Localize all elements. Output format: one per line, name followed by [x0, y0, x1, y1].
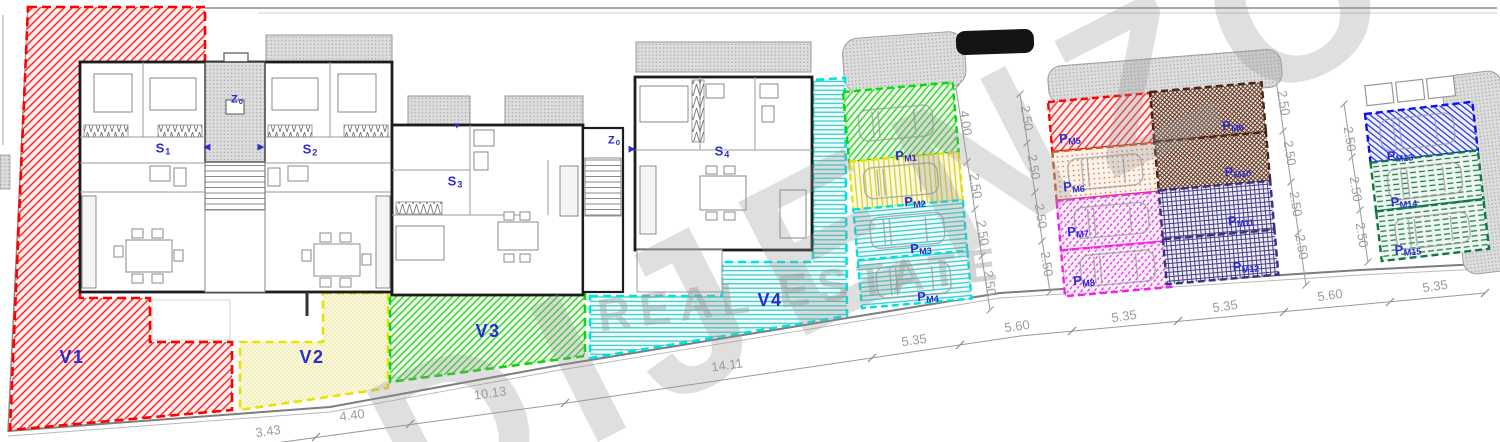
dimension-label: 5.60 — [1004, 318, 1031, 334]
parking-pm9-label: PM9 — [1222, 118, 1245, 135]
zone-v1-label: V1 — [59, 348, 84, 366]
door-right-icon: ▶ — [629, 145, 636, 154]
unit-s3-label: S3 — [448, 174, 463, 189]
door-left-icon: ◀ — [204, 143, 211, 152]
parking-space-pm4 — [858, 251, 972, 308]
parking-pm12-label: PM12 — [1232, 258, 1260, 275]
door-down-icon: ▼ — [453, 122, 462, 131]
dimension-label: 2.50 — [1354, 221, 1371, 248]
dimension-label: 5.60 — [1317, 287, 1344, 303]
unit-s2-label: S2 — [303, 142, 318, 157]
unit-z0-upper-label: Z0 — [608, 135, 620, 146]
parking-pm3-label: PM3 — [910, 241, 933, 258]
boundary-utility-block — [0, 155, 10, 189]
unit-s1-label: S1 — [156, 141, 171, 156]
redaction-box — [956, 29, 1035, 56]
storage-box — [1365, 83, 1394, 106]
dimension-label: 2.50 — [1026, 153, 1043, 180]
dimension-label: 2.50 — [1039, 250, 1056, 277]
dimension-label: 2.50 — [1294, 233, 1311, 260]
building-s4 — [635, 42, 812, 292]
dimension-label: 2.50 — [1288, 190, 1305, 217]
dimension-label: 2.50 — [982, 269, 999, 296]
dimension-label: 4.00 — [958, 109, 975, 136]
dimension-label: 3.43 — [255, 423, 282, 439]
dimension-label: 5.35 — [1422, 278, 1449, 294]
stair-core-z0-upper — [583, 128, 623, 292]
terrace-v1 — [152, 300, 230, 340]
parking-pm14-label: PM14 — [1390, 193, 1418, 210]
unit-z0-label: Z0 — [231, 94, 243, 105]
parking-pm1-label: PM1 — [895, 148, 918, 165]
dimension-label: 2.50 — [1348, 175, 1365, 202]
dimension-label: 2.50 — [1033, 202, 1050, 229]
parking-column-4 — [1362, 74, 1489, 261]
parking-pm2-label: PM2 — [904, 194, 927, 211]
dimension-label: 2.50 — [1282, 139, 1299, 166]
dimension-label: 5.35 — [901, 332, 928, 348]
zone-v4-label: V4 — [757, 291, 782, 309]
parking-pm6-label: PM6 — [1063, 179, 1086, 196]
dimension-label: 2.50 — [975, 219, 992, 246]
unit-s4-label: S4 — [715, 144, 730, 159]
parking-pm10-label: PM10 — [1224, 163, 1252, 180]
parking-pm15-label: PM15 — [1394, 241, 1422, 258]
door-right-icon: ▶ — [258, 143, 265, 152]
zone-v2-label: V2 — [299, 348, 324, 366]
parking-pm11-label: PM11 — [1227, 212, 1254, 229]
parking-column-3 — [1150, 82, 1278, 284]
dimension-label: 5.35 — [1212, 298, 1239, 314]
building-s3 — [392, 96, 583, 295]
building-s1-s2 — [80, 35, 392, 316]
site-plan-drawing — [0, 0, 1500, 442]
storage-box — [1396, 79, 1425, 102]
parking-pm5-label: PM5 — [1059, 131, 1082, 148]
parking-pm13-label: PM13 — [1386, 147, 1414, 164]
dimension-label: 5.35 — [1111, 308, 1138, 324]
dimension-label: 2.50 — [968, 172, 985, 199]
dimension-label: 2.50 — [1342, 125, 1359, 152]
zone-v3-label: V3 — [475, 322, 500, 340]
parking-pm8-label: PM8 — [1073, 273, 1096, 290]
dimension-label: 4.40 — [339, 407, 366, 423]
site-plan: DIJENZO REAL ESTATE V1 V2 V3 V4 Z0 S1 S2… — [0, 0, 1500, 442]
dimension-label: 2.50 — [1019, 104, 1036, 131]
dimension-label: 2.50 — [1276, 89, 1293, 116]
parking-pm4-label: PM4 — [917, 289, 940, 306]
storage-box — [1426, 76, 1455, 99]
parking-pm7-label: PM7 — [1067, 224, 1090, 241]
